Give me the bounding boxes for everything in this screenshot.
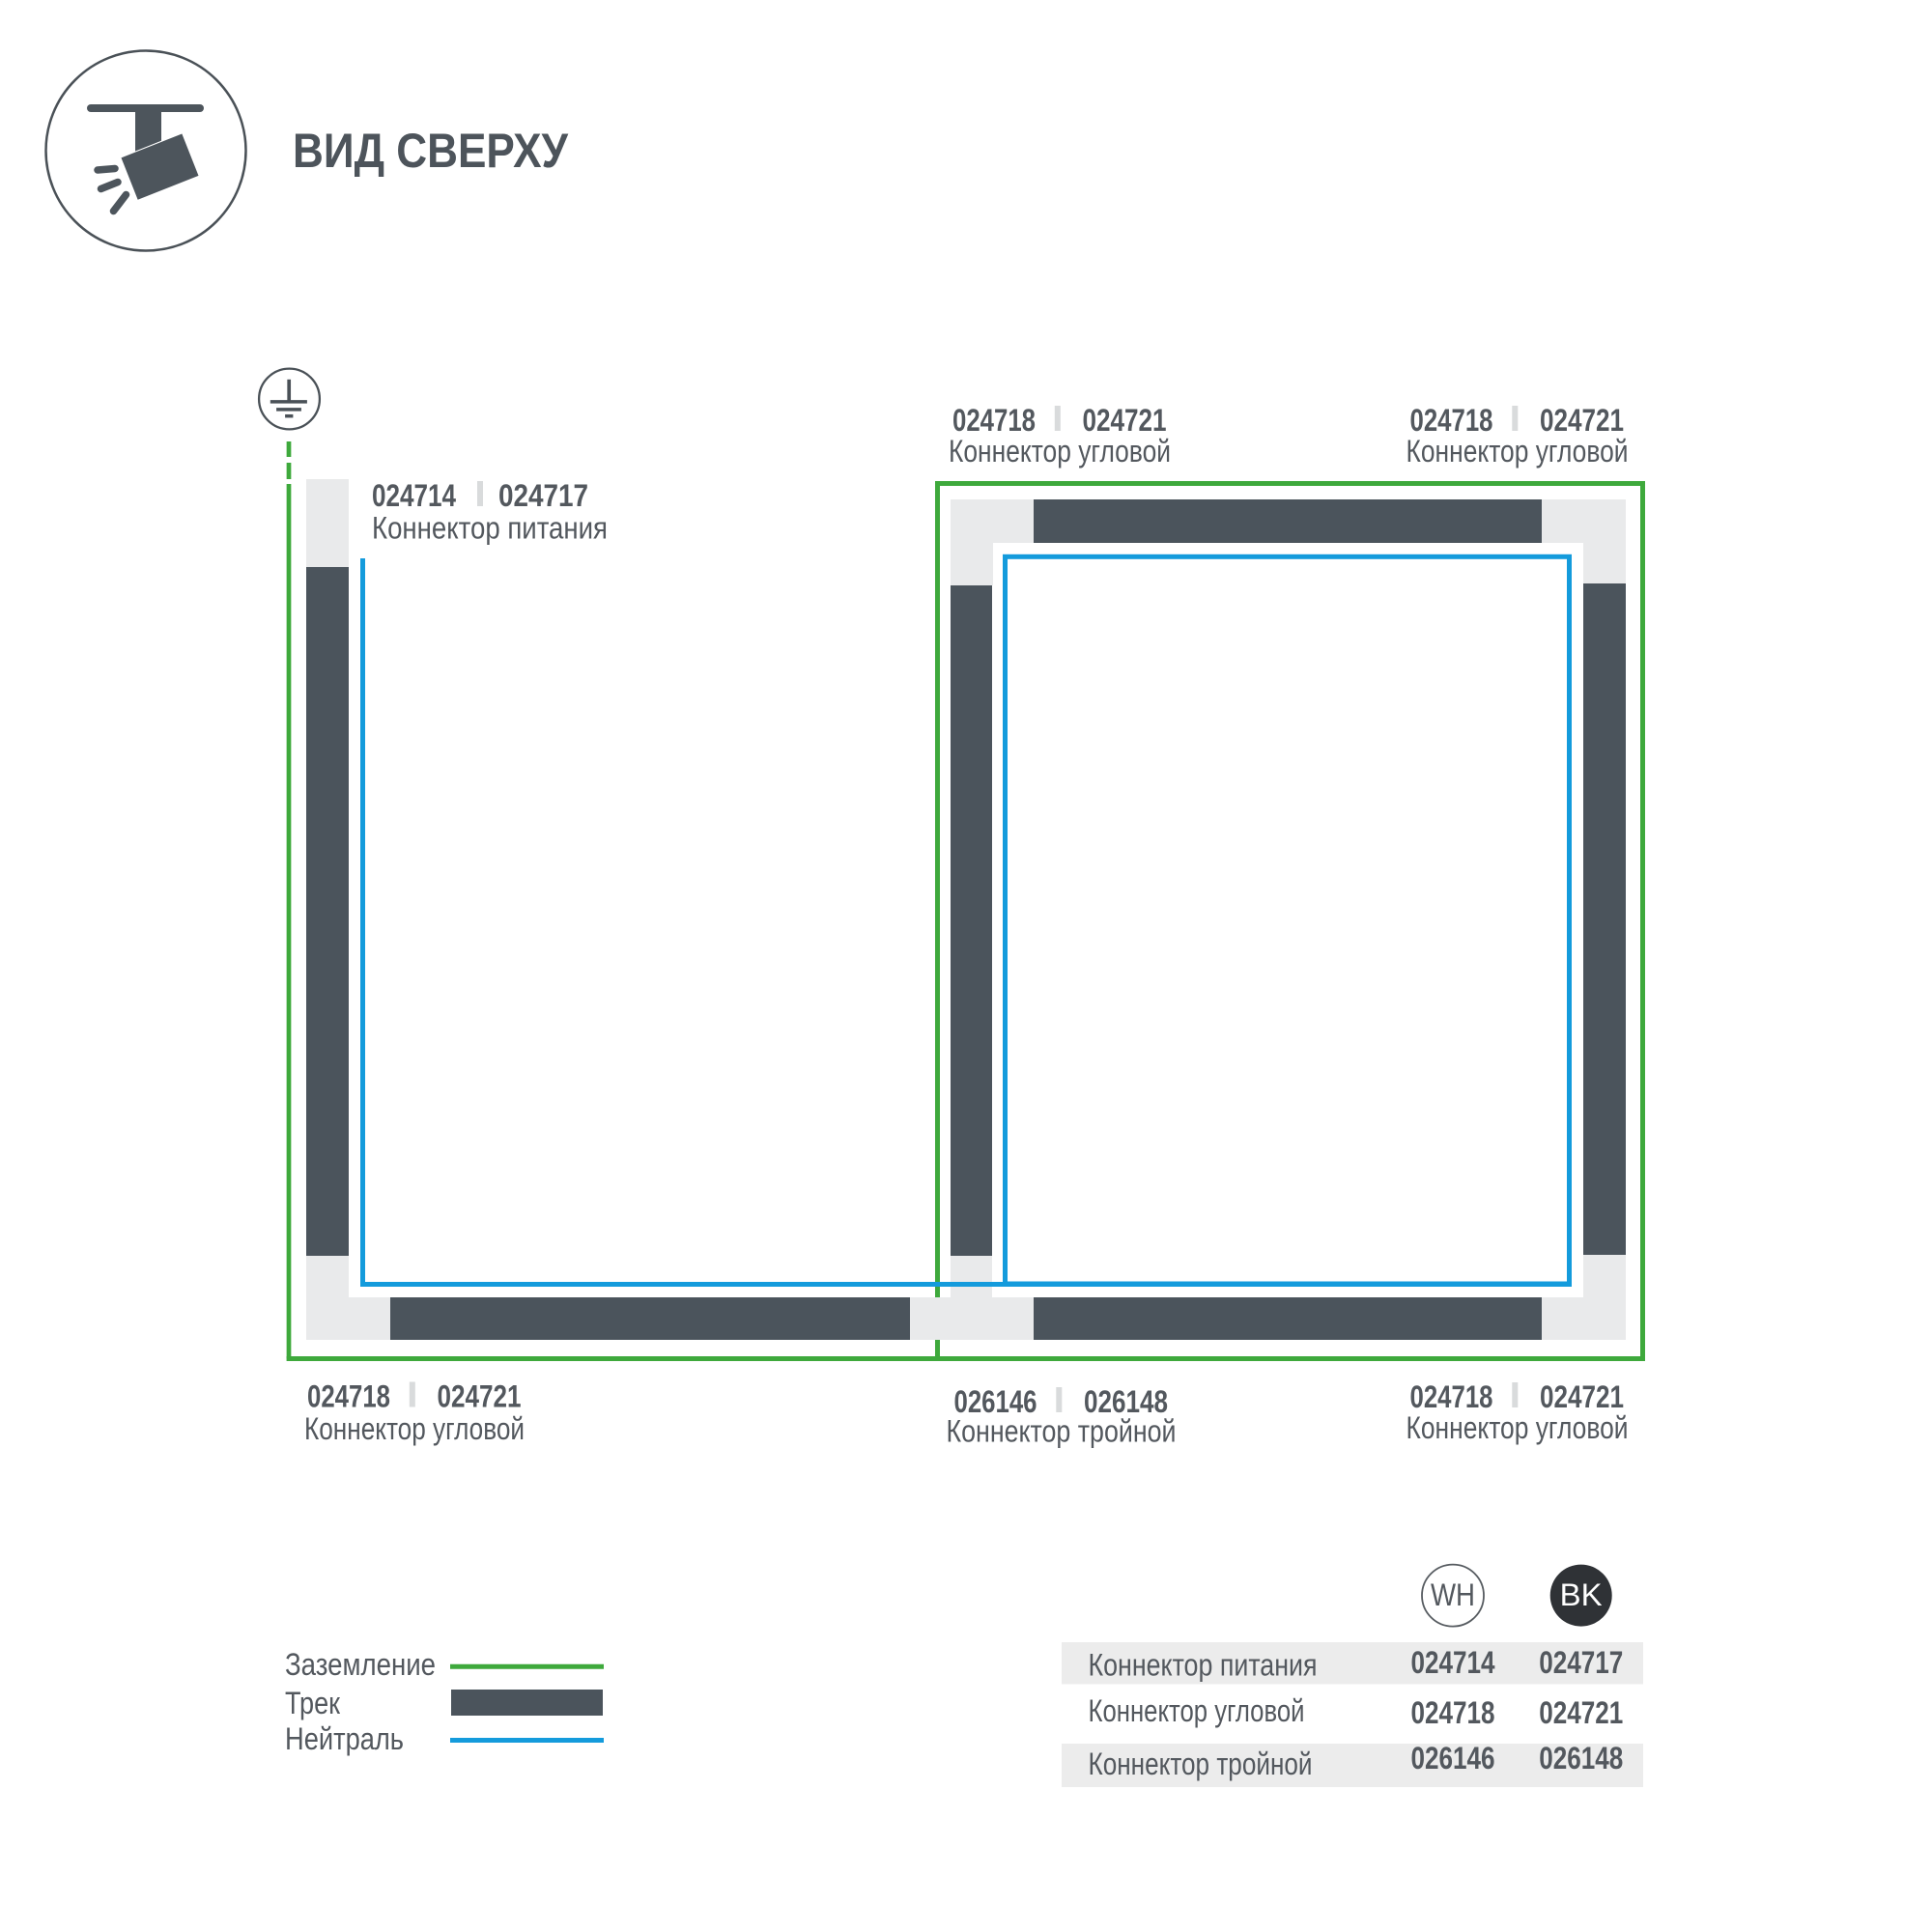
svg-text:024718: 024718 <box>307 1379 390 1414</box>
svg-text:024721: 024721 <box>1539 1695 1623 1730</box>
svg-text:Нейтраль: Нейтраль <box>285 1721 404 1756</box>
svg-text:024714: 024714 <box>372 478 456 513</box>
svg-text:Коннектор тройной: Коннектор тройной <box>947 1414 1177 1449</box>
svg-text:Коннектор питания: Коннектор питания <box>1089 1648 1318 1683</box>
svg-text:Коннектор тройной: Коннектор тройной <box>1089 1747 1313 1781</box>
svg-text:026148: 026148 <box>1539 1741 1623 1776</box>
svg-text:024717: 024717 <box>1539 1645 1623 1680</box>
svg-text:Коннектор питания: Коннектор питания <box>372 511 608 546</box>
svg-text:Трек: Трек <box>285 1686 341 1720</box>
svg-text:Коннектор угловой: Коннектор угловой <box>1406 1410 1629 1445</box>
svg-text:Заземление: Заземление <box>285 1647 436 1682</box>
svg-text:ВИД СВЕРХУ: ВИД СВЕРХУ <box>293 124 569 178</box>
svg-text:024721: 024721 <box>1540 403 1624 438</box>
svg-text:024721: 024721 <box>1540 1379 1624 1414</box>
svg-text:024718: 024718 <box>1410 1379 1493 1414</box>
svg-text:024721: 024721 <box>438 1379 522 1414</box>
svg-text:024718: 024718 <box>1410 403 1493 438</box>
svg-text:024717: 024717 <box>498 478 588 513</box>
svg-text:024718: 024718 <box>952 403 1036 438</box>
svg-text:Коннектор угловой: Коннектор угловой <box>1089 1693 1305 1728</box>
svg-text:024718: 024718 <box>1411 1695 1495 1730</box>
svg-text:Коннектор угловой: Коннектор угловой <box>949 434 1171 469</box>
svg-text:024714: 024714 <box>1411 1645 1495 1680</box>
svg-text:Коннектор угловой: Коннектор угловой <box>1406 434 1629 469</box>
svg-text:BK: BK <box>1560 1577 1603 1612</box>
svg-text:WH: WH <box>1431 1577 1475 1612</box>
svg-text:Коннектор угловой: Коннектор угловой <box>304 1411 525 1446</box>
svg-text:026146: 026146 <box>1411 1741 1495 1776</box>
svg-text:024721: 024721 <box>1083 403 1167 438</box>
